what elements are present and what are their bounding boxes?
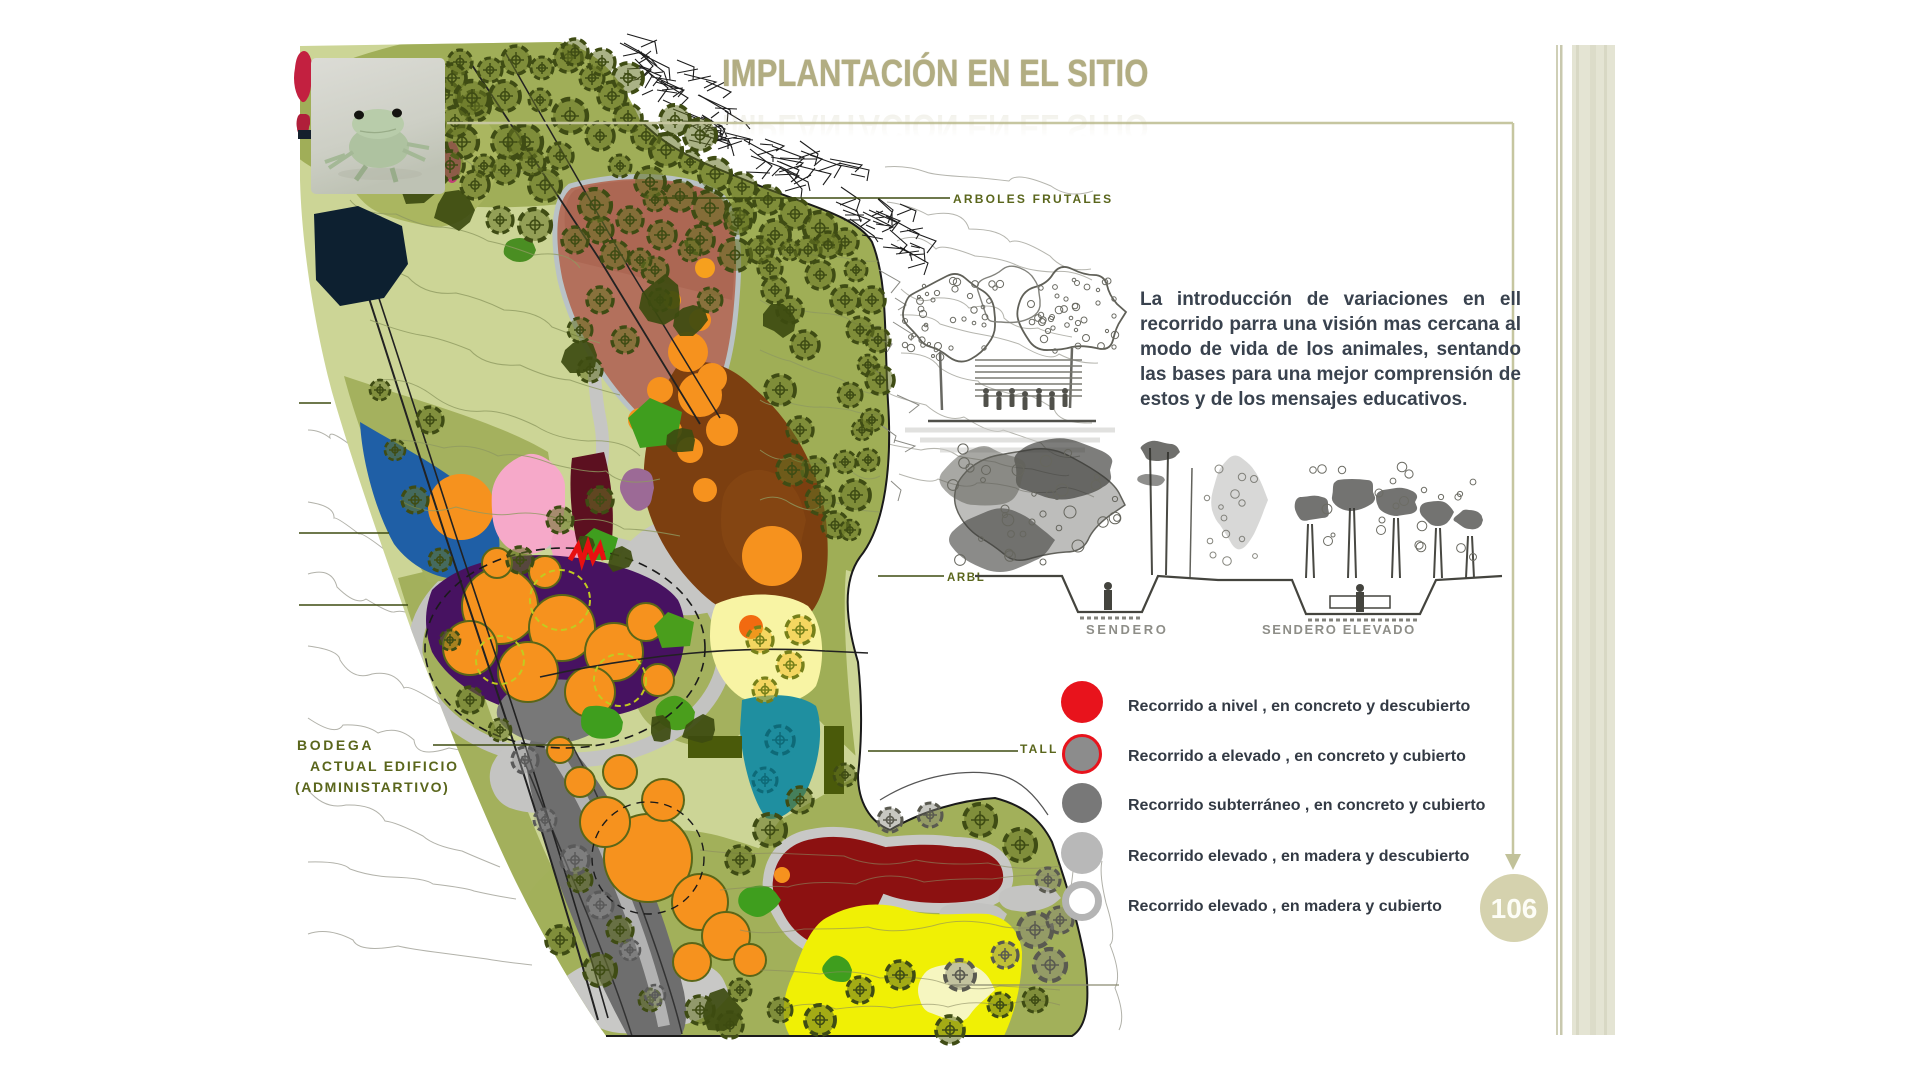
svg-text:SENDERO: SENDERO (1086, 622, 1169, 637)
svg-text:TALL: TALL (1020, 742, 1059, 756)
svg-text:106: 106 (1491, 893, 1538, 924)
svg-text:(ADMINISTARTIVO): (ADMINISTARTIVO) (295, 779, 449, 795)
svg-text:BODEGA: BODEGA (297, 737, 374, 753)
svg-text:ACTUAL EDIFICIO: ACTUAL EDIFICIO (310, 758, 459, 774)
svg-text:SENDERO ELEVADO: SENDERO ELEVADO (1262, 622, 1416, 637)
svg-text:ARBL: ARBL (947, 572, 985, 584)
svg-text:ARBOLES FRUTALES: ARBOLES FRUTALES (953, 192, 1113, 206)
